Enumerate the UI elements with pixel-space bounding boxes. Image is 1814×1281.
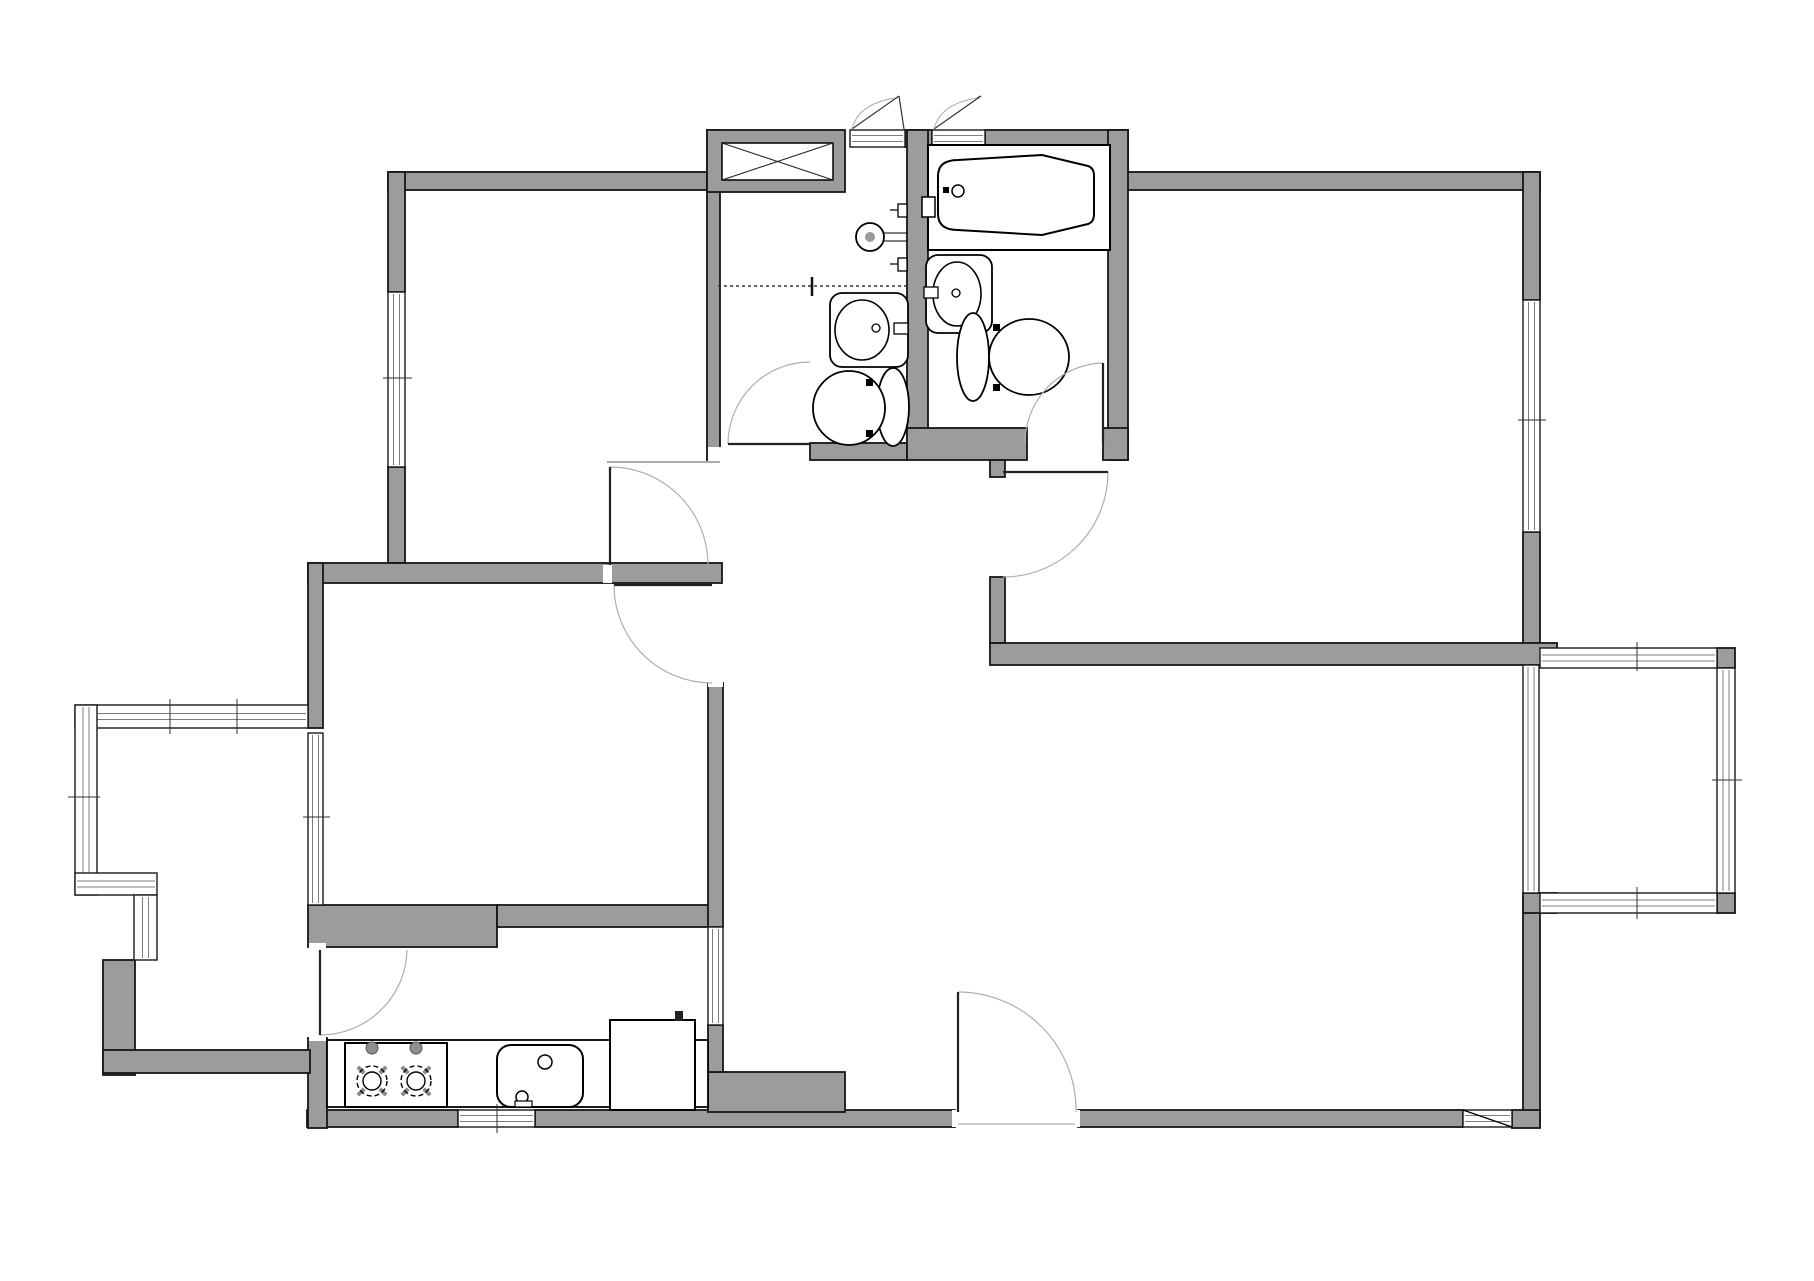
rbalcony-se-post-wall [1717,893,1735,913]
master-east-window [1523,300,1540,532]
toilet1-hinge-b [866,430,873,437]
bedroom2-west-wall-wall [308,563,323,728]
door-threshold [309,943,326,951]
rbalcony-north-glazing [1540,648,1717,668]
lbalcony-north-glazing [75,705,308,728]
bath1-faucet-knob [872,324,880,332]
appliance-box [610,1020,695,1110]
lbalcony-south-glazing [75,873,157,895]
master-west-stub-wall-wall [990,577,1005,643]
entry-step-block-wall [708,1072,845,1112]
bedroom1-west-wall-lower-wall [388,467,405,563]
rbalcony-ne-post-wall [1717,648,1735,668]
door-threshold [309,1033,326,1041]
bath1-top-vent-leaf [852,96,899,129]
kitchen-door-swing-arc [320,950,407,1035]
ksink-strainer [515,1101,532,1107]
corridor-south-wall-wall [103,1050,310,1073]
toilet1-bowl [813,371,885,445]
toilet2-tank [957,313,989,401]
entry-door-swing-arc [958,992,1076,1112]
door-threshold [708,447,728,462]
kitchen-east-window [708,927,723,1025]
bedroom1-west-wall-upper-wall [388,172,405,292]
bedroom1-door-swing-arc [610,467,708,565]
toilet2-bowl [989,319,1069,395]
kitchen-sink [497,1045,583,1107]
bath2-top-vent-leaf [934,96,981,129]
bath2-faucet-knob [952,289,960,297]
bedroom2-south-wall-right-wall [497,905,722,927]
bath1-top-threshold [850,130,905,147]
tub-faucet [922,197,935,217]
kitchen-south-wall-wall [307,1110,458,1127]
east-wall-lower-wall [1523,897,1540,1127]
south-wall-right-wall [1078,1110,1463,1127]
ksink-faucet [538,1055,552,1069]
tub-dot [943,187,949,193]
toilet2-hinge-a [993,324,1000,331]
bedroom2-south-wall-left-wall [308,905,497,947]
bedroom2-door-swing-arc [614,585,712,683]
lbalcony-west-glazing [75,705,97,895]
cooktop-knob-a [366,1042,378,1054]
master-south-wall-wall [990,643,1557,665]
bath1-top-vent-leaf [899,96,904,129]
rbalcony-south-glazing [1540,893,1717,913]
east-wall-upper-wall [1523,172,1540,300]
bedroom1-west-window [388,292,405,467]
bath1-basin [835,300,889,360]
lbalcony-return-glazing [134,895,157,960]
toilet2-hinge-b [993,384,1000,391]
shower-drain-dot [865,232,875,242]
bedroom2-east-wall-wall [708,683,723,927]
master-north-wall-wall [1110,172,1540,190]
bath2-faucet [924,287,938,298]
floor-plan-page [0,0,1814,1281]
kitchen-east-wall-wall [708,1025,723,1072]
living-balcony-glazing [1523,665,1539,893]
appliance-handle [675,1011,683,1021]
tub-drain [952,185,964,197]
cooktop-knob-b [410,1042,422,1054]
master-door-jamb-wall [990,460,1005,477]
floor-plan-svg [0,0,1814,1281]
master-suite-door-swing-arc [1003,472,1108,577]
south-wall-se-corner-wall [1512,1110,1540,1128]
bath2-se-corner-wall [1103,428,1128,460]
door-threshold [603,565,612,583]
bedroom1-north-wall-wall [388,172,707,190]
bath1-faucet [894,323,908,334]
toilet1-hinge-a [866,379,873,386]
east-wall-mid-wall [1523,532,1540,648]
cooktop [345,1043,447,1107]
bath2-south-wall-wall [907,428,1027,460]
shower-handle-a [898,204,907,217]
bedroom2-balcony-window [308,733,323,905]
shower-handle-b [898,258,907,271]
bathroom1-door-swing-arc [728,362,810,444]
bedroom1-south-wall-wall [308,563,722,583]
